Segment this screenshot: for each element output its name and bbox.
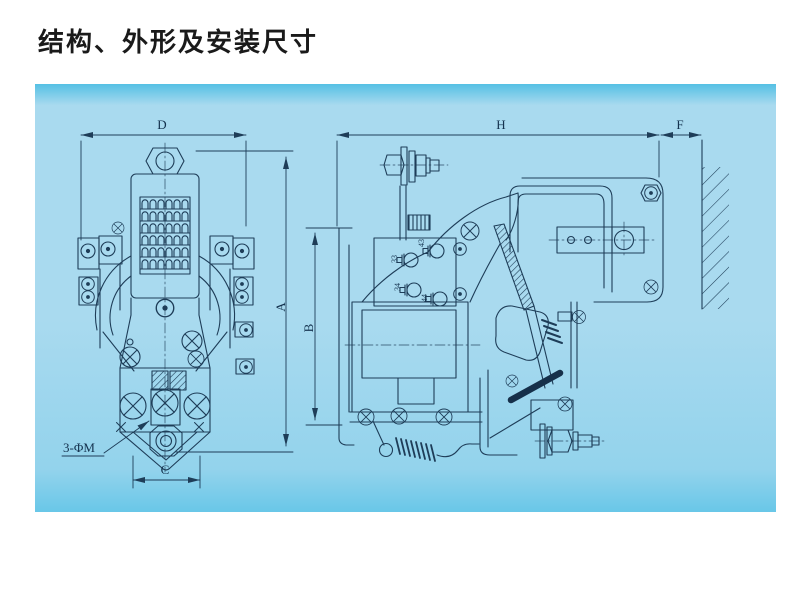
aux-terminal-number: 33 (390, 255, 399, 263)
wall-hatch (702, 167, 729, 309)
dim-label-c: C (161, 462, 170, 477)
slide-canvas: 结构、外形及安装尺寸 (0, 0, 800, 600)
aux-terminal-number: 43 (417, 239, 426, 247)
dim-label-a: A (273, 302, 288, 312)
dim-label-f: F (676, 117, 683, 132)
mounting-hole-label: 3-ΦM (63, 440, 95, 455)
dim-label-b: B (301, 323, 316, 332)
technical-drawing: 43 33 34 44 (0, 0, 800, 600)
dim-label-h: H (496, 117, 505, 132)
aux-terminal-number: 44 (420, 294, 429, 302)
dim-label-d: D (157, 117, 166, 132)
aux-terminal-number: 34 (393, 283, 402, 291)
